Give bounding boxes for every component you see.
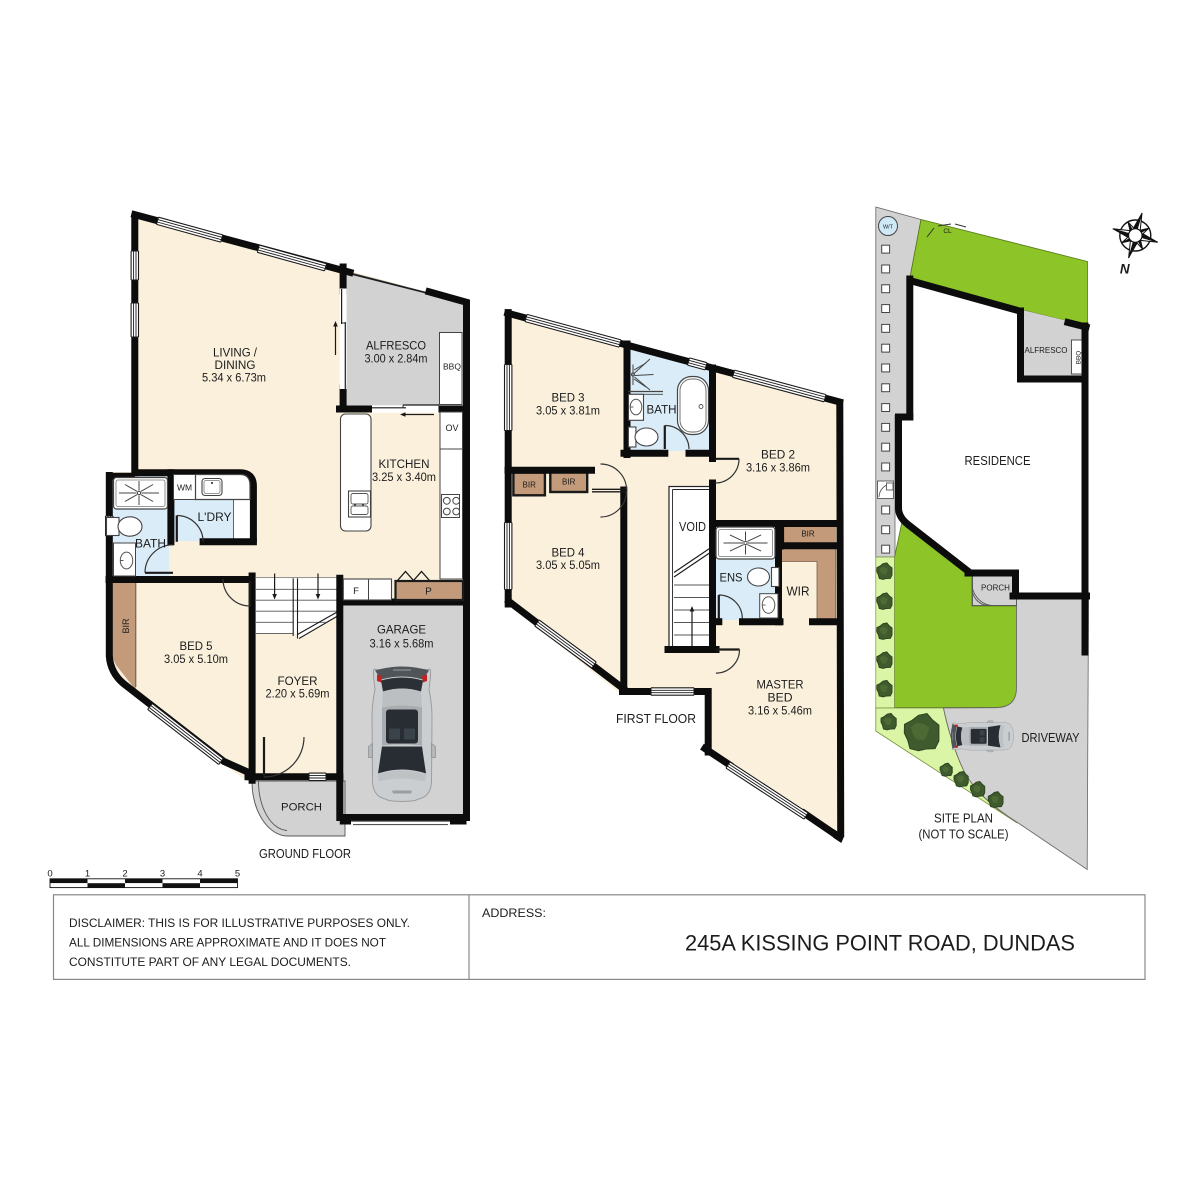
svg-text:5: 5	[235, 869, 240, 880]
svg-text:2.20 x 5.69m: 2.20 x 5.69m	[266, 687, 330, 701]
svg-text:3.05 x 3.81m: 3.05 x 3.81m	[536, 404, 600, 418]
svg-text:BIR: BIR	[121, 618, 131, 634]
svg-text:N: N	[1120, 262, 1130, 277]
svg-text:ENS: ENS	[720, 573, 743, 585]
svg-text:ADDRESS:: ADDRESS:	[482, 908, 546, 920]
svg-text:BIR: BIR	[523, 481, 537, 490]
svg-text:CL: CL	[943, 228, 952, 235]
svg-text:3: 3	[160, 869, 165, 880]
svg-text:3.05 x 5.10m: 3.05 x 5.10m	[164, 652, 228, 666]
svg-text:(NOT TO SCALE): (NOT TO SCALE)	[919, 827, 1009, 842]
svg-text:3.05 x 5.05m: 3.05 x 5.05m	[536, 558, 600, 572]
svg-text:BIR: BIR	[801, 530, 815, 539]
svg-text:BATH: BATH	[647, 405, 677, 417]
svg-text:FIRST FLOOR: FIRST FLOOR	[616, 711, 696, 726]
svg-text:BED 3: BED 3	[552, 391, 585, 405]
svg-text:4: 4	[197, 869, 202, 880]
svg-text:SITE PLAN: SITE PLAN	[934, 811, 993, 826]
svg-text:3.16 x 5.68m: 3.16 x 5.68m	[370, 637, 434, 651]
svg-text:5.34 x 6.73m: 5.34 x 6.73m	[202, 371, 266, 385]
svg-text:0: 0	[47, 869, 52, 880]
svg-text:ALFRESCO: ALFRESCO	[1025, 345, 1068, 355]
svg-text:WIR: WIR	[787, 585, 810, 599]
svg-text:BATH: BATH	[135, 539, 166, 551]
svg-text:BIR: BIR	[562, 477, 576, 486]
svg-text:GARAGE: GARAGE	[377, 623, 426, 637]
svg-text:W/T: W/T	[883, 225, 894, 231]
svg-text:BED 2: BED 2	[761, 448, 795, 462]
svg-text:L'DRY: L'DRY	[198, 512, 232, 524]
svg-text:BBQ: BBQ	[443, 362, 461, 372]
svg-text:BED: BED	[768, 691, 793, 705]
svg-text:PORCH: PORCH	[281, 802, 322, 814]
svg-text:3.00 x 2.84m: 3.00 x 2.84m	[365, 352, 428, 366]
svg-text:2: 2	[122, 869, 127, 880]
svg-text:1: 1	[85, 869, 90, 880]
svg-text:WM: WM	[177, 483, 192, 493]
svg-text:OV: OV	[445, 423, 458, 433]
svg-text:GROUND FLOOR: GROUND FLOOR	[259, 846, 351, 861]
svg-text:PORCH: PORCH	[981, 584, 1010, 593]
svg-text:3.25 x 3.40m: 3.25 x 3.40m	[372, 470, 436, 484]
svg-text:CONSTITUTE PART OF ANY LEGAL D: CONSTITUTE PART OF ANY LEGAL DOCUMENTS.	[69, 955, 351, 969]
svg-text:F: F	[353, 586, 359, 597]
svg-text:ALL DIMENSIONS ARE APPROXIMATE: ALL DIMENSIONS ARE APPROXIMATE AND IT DO…	[69, 936, 386, 950]
svg-text:RESIDENCE: RESIDENCE	[965, 453, 1031, 468]
svg-text:VOID: VOID	[679, 520, 706, 534]
svg-text:3.16 x 3.86m: 3.16 x 3.86m	[746, 461, 810, 475]
svg-text:ALFRESCO: ALFRESCO	[366, 339, 426, 353]
svg-text:KITCHEN: KITCHEN	[379, 457, 430, 471]
svg-text:P: P	[425, 587, 432, 598]
svg-text:BED 5: BED 5	[180, 639, 213, 653]
svg-text:3.16 x 5.46m: 3.16 x 5.46m	[748, 704, 812, 718]
svg-text:DRIVEWAY: DRIVEWAY	[1022, 731, 1081, 745]
svg-text:BBQ: BBQ	[1076, 351, 1083, 365]
svg-text:MASTER: MASTER	[757, 678, 804, 692]
svg-text:DISCLAIMER: THIS IS FOR ILLUST: DISCLAIMER: THIS IS FOR ILLUSTRATIVE PUR…	[69, 916, 410, 930]
svg-text:245A KISSING POINT ROAD, DUNDA: 245A KISSING POINT ROAD, DUNDAS	[685, 931, 1075, 956]
